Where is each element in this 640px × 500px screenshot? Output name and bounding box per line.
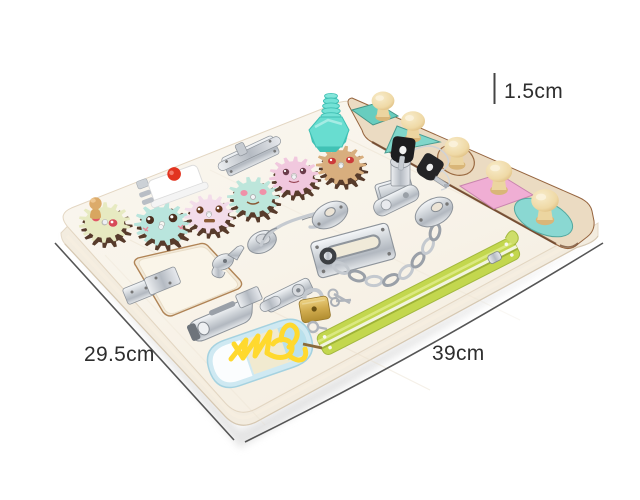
svg-text:39cm: 39cm xyxy=(432,342,485,365)
svg-text:1.5cm: 1.5cm xyxy=(504,80,563,103)
svg-text:29.5cm: 29.5cm xyxy=(84,343,155,366)
